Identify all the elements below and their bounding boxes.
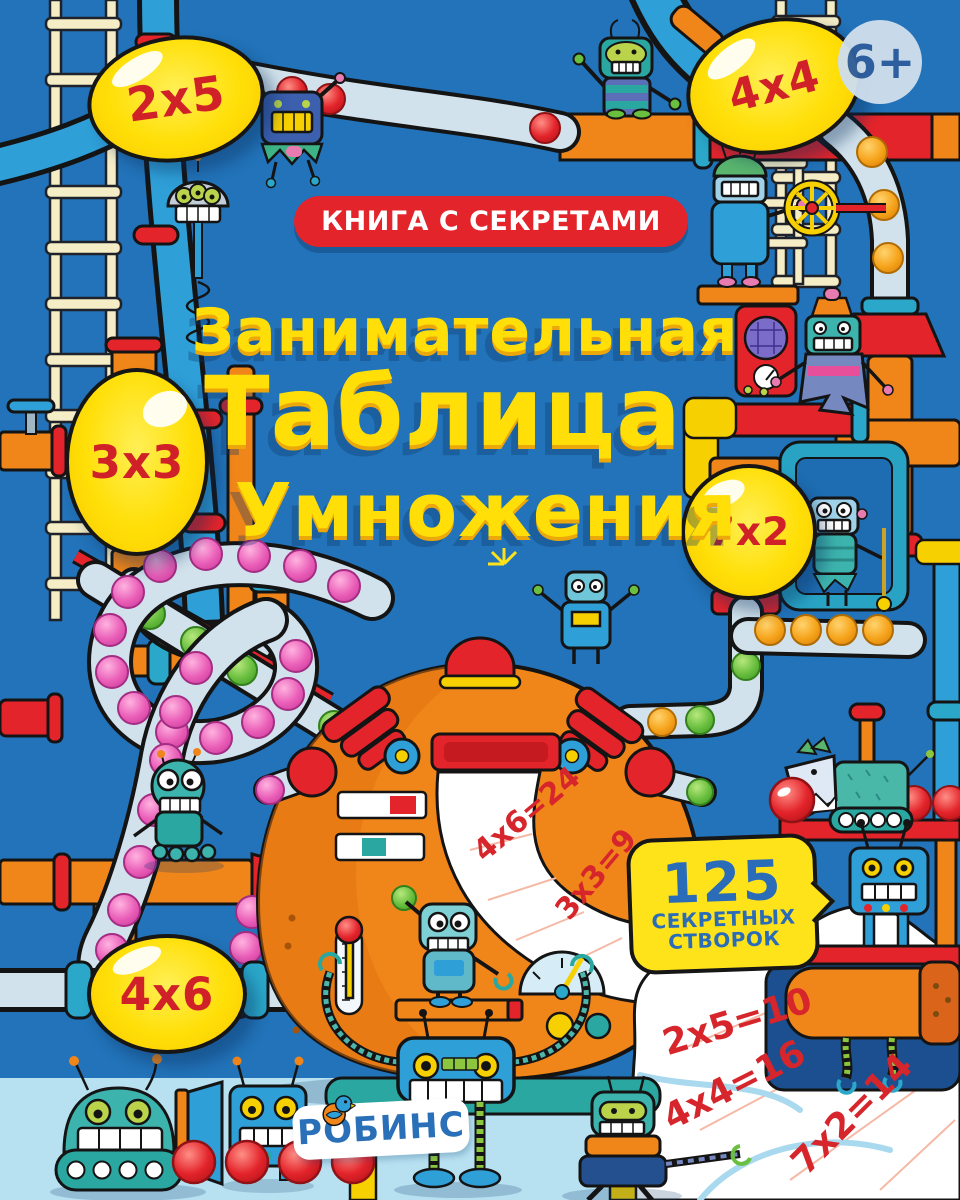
- book-cover: 2х5 4х4 3х3 7х2 4х6 6+ КНИГА С СЕКРЕТАМИ…: [0, 0, 960, 1200]
- robins-bird-icon: [315, 1091, 357, 1129]
- publisher-logo: РОБИНС: [292, 1097, 471, 1160]
- title-line-2: Таблица: [204, 356, 682, 468]
- bubble-4x4-label: 4х4: [723, 49, 826, 122]
- bubble-4x6-label: 4х6: [120, 968, 215, 1021]
- side-port-right: [626, 748, 674, 796]
- orange-balls-tube: [748, 615, 908, 645]
- bubble-3x3-label: 3х3: [90, 436, 185, 489]
- bubble-2x5-label: 2х5: [123, 65, 228, 133]
- flaps-text-line2: СТВОРОК: [668, 928, 781, 953]
- secrets-banner: КНИГА С СЕКРЕТАМИ: [294, 196, 688, 247]
- meter-device: [736, 306, 796, 396]
- bubble-3x3: 3х3: [65, 368, 209, 556]
- title-line-3: Умножения: [235, 468, 738, 554]
- bubble-4x6: 4х6: [87, 934, 247, 1054]
- flaps-speech-bubble: 125 СЕКРЕТНЫХ СТВОРОК: [626, 833, 821, 976]
- flaps-count: 125: [661, 854, 784, 910]
- age-badge: 6+: [838, 20, 922, 104]
- side-port-left: [288, 748, 336, 796]
